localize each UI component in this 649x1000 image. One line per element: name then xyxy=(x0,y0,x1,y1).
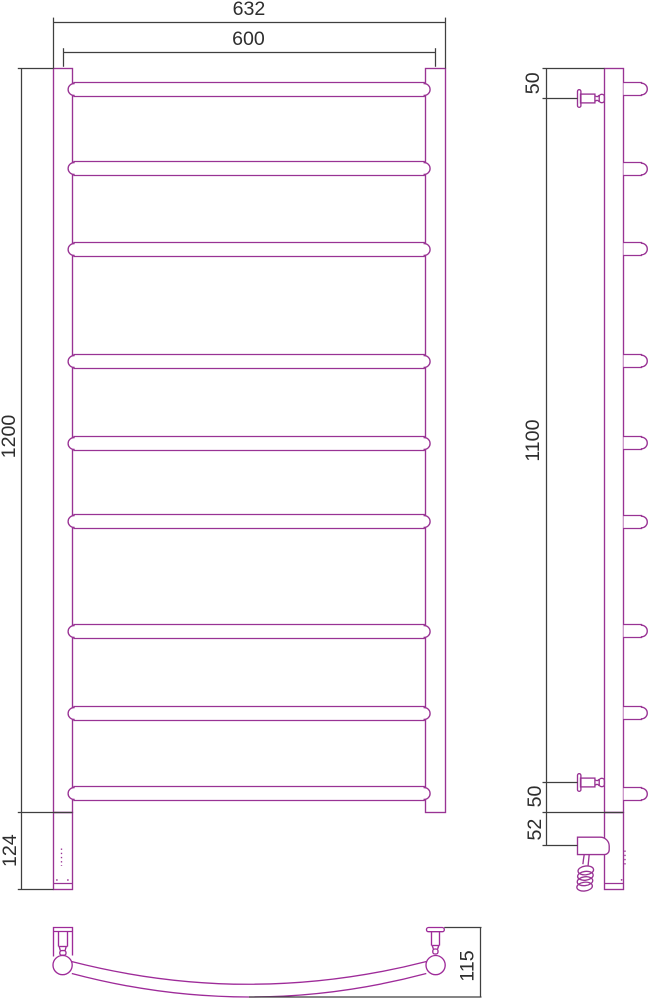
svg-text:115: 115 xyxy=(456,950,478,981)
svg-text:1200: 1200 xyxy=(0,415,20,459)
svg-text:50: 50 xyxy=(524,786,546,808)
svg-text:1100: 1100 xyxy=(522,419,544,461)
svg-text:50: 50 xyxy=(522,72,544,94)
svg-text:124: 124 xyxy=(0,834,21,867)
svg-text:52: 52 xyxy=(524,819,546,841)
svg-text:632: 632 xyxy=(233,0,266,20)
svg-text:600: 600 xyxy=(232,28,265,50)
